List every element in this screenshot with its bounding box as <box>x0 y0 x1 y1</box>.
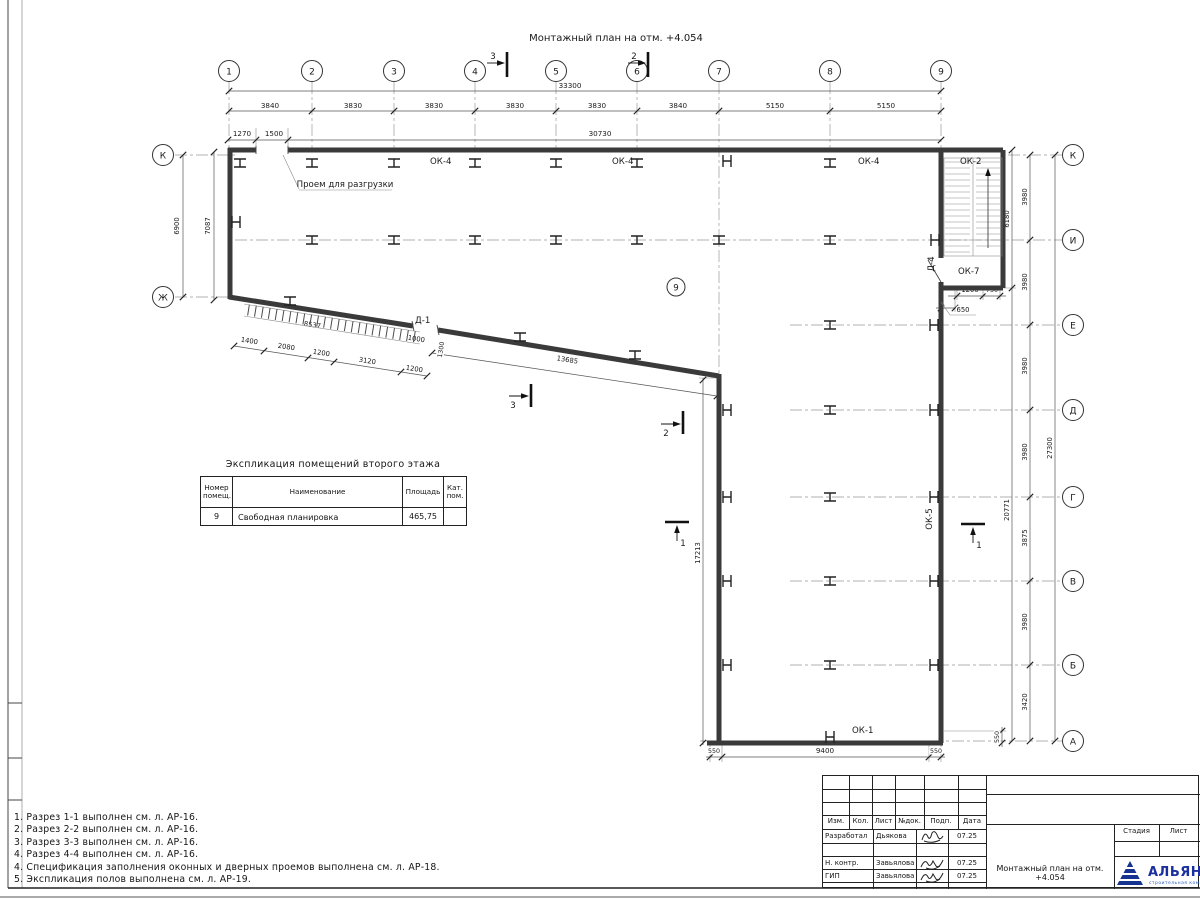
dimension-lines <box>183 91 1055 757</box>
axis-label: 3 <box>391 68 397 78</box>
stair <box>944 158 1002 256</box>
stamp-stage-header: Стадия <box>1114 827 1159 835</box>
axis-label: Ж <box>158 294 168 304</box>
plan-title: Монтажный план на отм. +4.054 <box>529 33 703 44</box>
dim: 3980 <box>1021 357 1029 374</box>
window-mark: ОК-4 <box>858 157 879 167</box>
axis-label: 9 <box>938 68 944 78</box>
stamp-name: Завьялова <box>876 872 915 880</box>
cell-room-category <box>444 508 467 526</box>
dim: 30730 <box>589 129 612 138</box>
axis-label: И <box>1070 237 1077 247</box>
stamp-col-kol: Кол. <box>849 817 872 825</box>
axis-label: К <box>160 152 167 162</box>
dim: 5150 <box>766 101 785 110</box>
signature-scribble <box>918 857 946 870</box>
col-header-name: Наименование <box>233 477 403 508</box>
stamp-col-data: Дата <box>958 817 986 825</box>
dim: 2080 <box>277 342 295 353</box>
axis-label: В <box>1070 578 1076 588</box>
axis-label: 2 <box>309 68 315 78</box>
dim: 3840 <box>669 101 688 110</box>
axis-label: Е <box>1070 322 1076 332</box>
dim: 550 <box>708 748 720 755</box>
signature-scribble <box>919 828 945 843</box>
room-table-title: Экспликация помещений второго этажа <box>200 459 466 470</box>
stamp-doc-title: Монтажный план на отм. +4.054 <box>989 864 1111 882</box>
title-block: Изм. Кол. Лист №док. Подп. Дата Разработ… <box>822 775 1199 888</box>
dim: 7087 <box>204 217 212 234</box>
steel-columns <box>232 155 939 743</box>
door-mark: Д-1 <box>415 316 430 326</box>
dim: 27300 <box>1046 437 1054 459</box>
stamp-col-izm: Изм. <box>823 817 849 825</box>
section-label: 2 <box>663 429 668 439</box>
dim: 13685 <box>556 354 579 365</box>
dim: 8537 <box>303 320 321 331</box>
window-mark: ОК-4 <box>612 157 633 167</box>
stamp-name: Завьялова <box>876 859 915 867</box>
dim: 1500 <box>265 129 284 138</box>
axis-label: Б <box>1070 662 1076 672</box>
section-label: 2 <box>631 52 636 62</box>
axis-label: Д <box>1069 407 1076 417</box>
dim: 650 <box>957 306 970 314</box>
dim: 1200 <box>312 348 330 359</box>
axis-label: Г <box>1070 494 1076 504</box>
section-marks: 3 2 3 2 1 1 <box>487 52 985 551</box>
note-line: 1. Разрез 1-1 выполнен см. л. АР-16. <box>14 812 440 824</box>
axis-bubbles-top: 1 2 3 4 5 6 7 8 9 <box>219 61 952 82</box>
section-label: 1 <box>680 539 685 549</box>
opening-label: Проем для разгрузки <box>297 180 394 190</box>
window-mark: ОК-1 <box>852 726 873 736</box>
logo-name: АЛЬЯНС <box>1148 865 1200 880</box>
dim: 3980 <box>1021 273 1029 290</box>
opening-marks: ОК-4 ОК-4 ОК-4 ОК-2 ОК-7 ОК-5 ОК-1 Д-1 Д… <box>415 157 981 736</box>
cell-room-area: 465,75 <box>403 508 444 526</box>
stamp-date: 07.25 <box>948 859 986 867</box>
stamp-role: Разработал <box>825 832 872 840</box>
note-line: 4. Разрез 4-4 выполнен см. л. АР-16. <box>14 849 440 861</box>
axis-bubbles-left: К Ж <box>153 145 174 308</box>
table-row: 9 Свободная планировка 465,75 <box>201 508 467 526</box>
cell-room-name: Свободная планировка <box>233 508 403 526</box>
drawing-sheet: Монтажный план на отм. +4.054 1 2 3 4 5 … <box>0 0 1200 900</box>
door-mark: Д-4 <box>927 256 937 271</box>
dim: 5150 <box>877 101 896 110</box>
room-number: 9 <box>673 284 678 294</box>
col-header-area: Площадь <box>403 477 444 508</box>
axis-label: А <box>1070 738 1077 748</box>
stamp-sheet-header: Лист <box>1159 827 1198 835</box>
alliance-logo: АЛЬЯНС строительная компания <box>1116 859 1200 887</box>
dim: 3840 <box>261 101 280 110</box>
extension-lines <box>256 128 1016 762</box>
logo-subtitle: строительная компания <box>1149 881 1200 886</box>
dim: 3980 <box>1021 613 1029 630</box>
axis-label: К <box>1070 152 1077 162</box>
stamp-role: ГИП <box>825 872 872 880</box>
dim: 3120 <box>358 356 376 367</box>
dim: 1270 <box>233 129 252 138</box>
dim: 3420 <box>1021 693 1029 710</box>
dim: 1300 <box>437 341 446 358</box>
dim: 20771 <box>1003 499 1011 521</box>
dim: 550 <box>930 748 942 755</box>
dim: 1400 <box>240 336 258 347</box>
window-mark: ОК-7 <box>958 267 979 277</box>
room-tag: 9 <box>667 278 685 296</box>
dim: 1000 <box>407 334 425 345</box>
stamp-col-ndok: №док. <box>895 817 924 825</box>
opening-annotation: Проем для разгрузки <box>283 155 393 190</box>
stamp-date: 07.25 <box>948 872 986 880</box>
dim: 3875 <box>1021 529 1029 546</box>
dim: 3980 <box>1021 443 1029 460</box>
axis-bubbles-right: К И Е Д Г В Б А <box>1063 145 1084 752</box>
window-mark: ОК-5 <box>925 508 935 529</box>
room-table: Экспликация помещений второго этажа Номе… <box>200 459 466 526</box>
col-header-category: Кат. пом. <box>444 477 467 508</box>
note-line: 4. Спецификация заполнения оконных и две… <box>14 862 440 874</box>
dim: 9400 <box>816 746 835 755</box>
axis-label: 6 <box>634 68 640 78</box>
dim: 3980 <box>1021 188 1029 205</box>
axis-label: 5 <box>553 68 559 78</box>
axis-label: 7 <box>716 68 722 78</box>
stamp-role: Н. контр. <box>825 859 872 867</box>
note-line: 3. Разрез 3-3 выполнен см. л. АР-16. <box>14 837 440 849</box>
window-mark: ОК-2 <box>960 157 981 167</box>
room-table-grid: Номер помещ. Наименование Площадь Кат. п… <box>200 476 467 526</box>
stamp-name: Дьякова <box>876 832 915 840</box>
stamp-col-list: Лист <box>872 817 895 825</box>
cell-room-number: 9 <box>201 508 233 526</box>
dim: 3830 <box>344 101 363 110</box>
axis-label: 8 <box>827 68 833 78</box>
window-mark: ОК-4 <box>430 157 451 167</box>
note-line: 2. Разрез 2-2 выполнен см. л. АР-16. <box>14 824 440 836</box>
floor-plan-canvas: Монтажный план на отм. +4.054 1 2 3 4 5 … <box>0 0 1200 900</box>
walls <box>228 146 1003 743</box>
section-label: 3 <box>490 52 495 62</box>
dim: 550 <box>994 731 1001 743</box>
dim: 17213 <box>694 542 702 564</box>
signature-scribble <box>918 870 946 883</box>
dim: 3830 <box>588 101 607 110</box>
stamp-date: 07.25 <box>948 832 986 840</box>
col-header-number: Номер помещ. <box>201 477 233 508</box>
dim-total-top: 33300 <box>559 81 582 90</box>
dim: 3830 <box>506 101 525 110</box>
note-line: 5. Экспликация полов выполнена см. л. АР… <box>14 874 440 886</box>
stamp-col-podp: Подп. <box>924 817 958 825</box>
dim: 6900 <box>173 217 181 234</box>
section-label: 3 <box>510 401 515 411</box>
notes-block: 1. Разрез 1-1 выполнен см. л. АР-16. 2. … <box>14 812 440 886</box>
axis-label: 1 <box>226 68 232 78</box>
section-label: 1 <box>976 541 981 551</box>
axis-label: 4 <box>472 68 478 78</box>
dim: 3830 <box>425 101 444 110</box>
company-logo: АЛЬЯНС строительная компания <box>1116 859 1200 887</box>
